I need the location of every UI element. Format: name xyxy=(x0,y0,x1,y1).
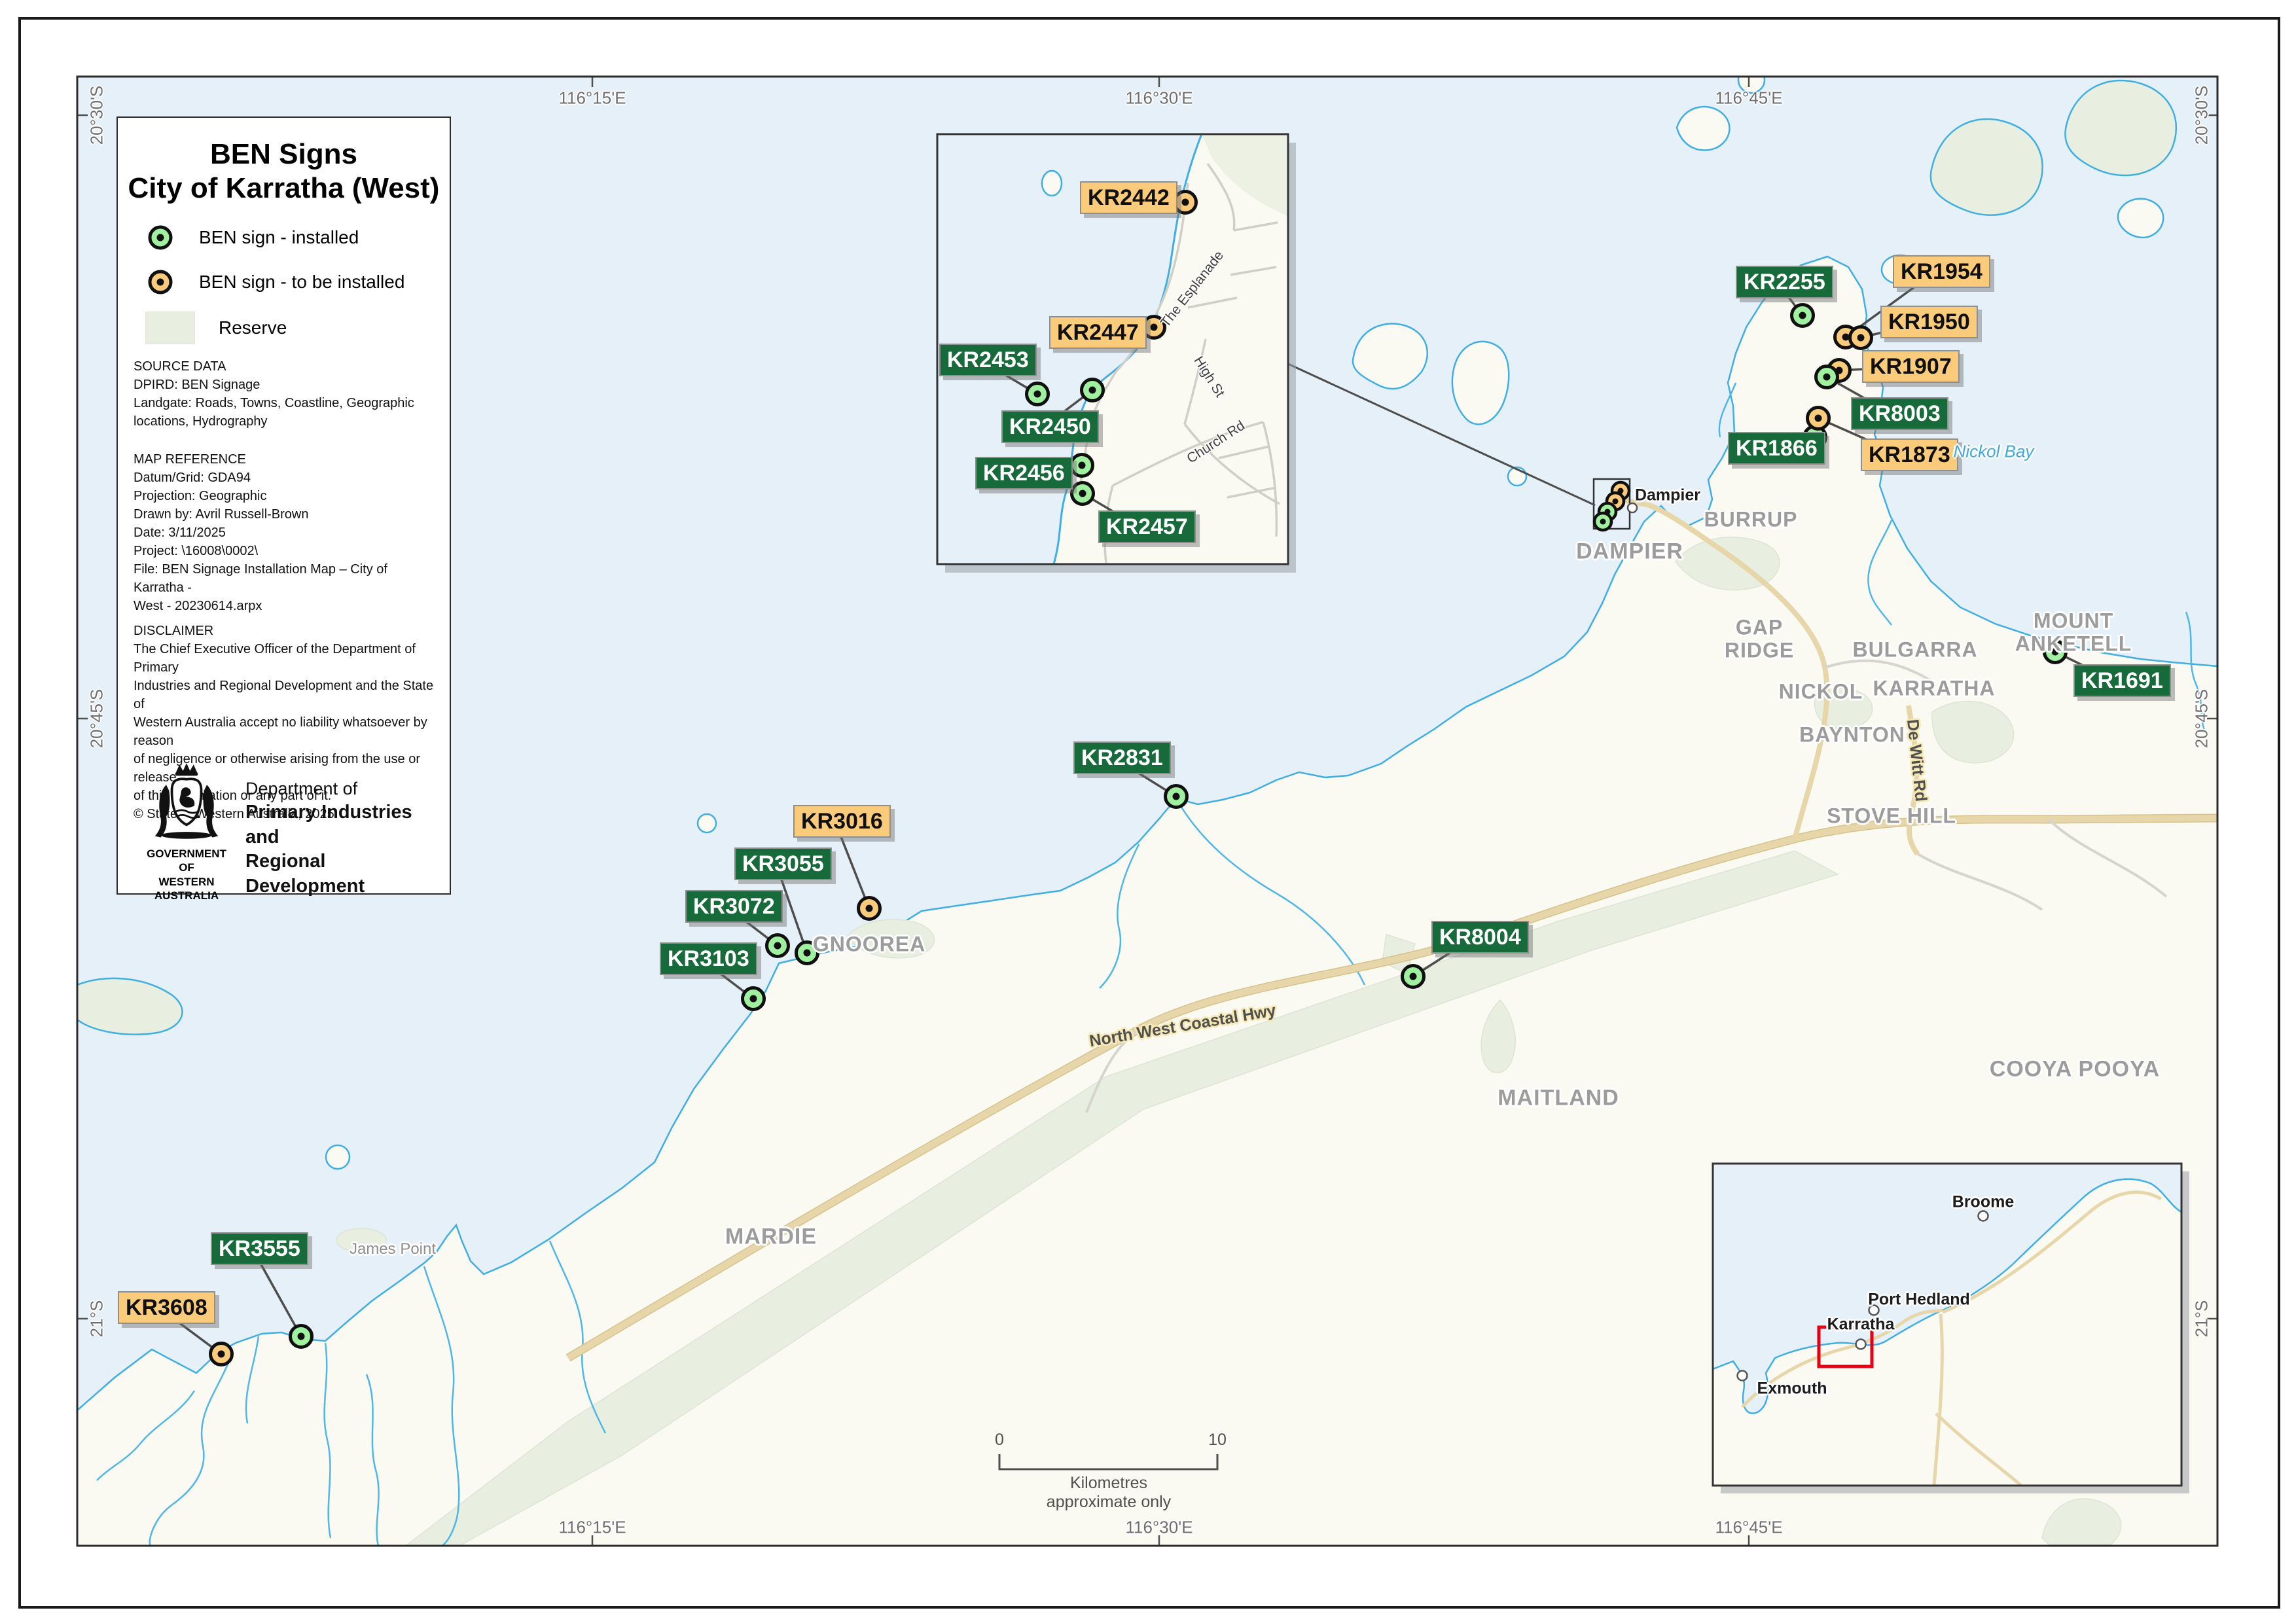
town-label-dampier: Dampier xyxy=(1635,486,1700,505)
sign-label-KR1691: KR1691 xyxy=(2073,664,2171,697)
place-label-james point: James Point xyxy=(350,1241,436,1258)
wa-government-crest: GOVERNMENT OFWESTERN AUSTRALIA xyxy=(137,762,236,902)
place-label-baynton: BAYNTON xyxy=(1799,724,1905,747)
place-label-cooya pooya: COOYA POOYA xyxy=(1990,1058,2160,1082)
place-label-maitland: MAITLAND xyxy=(1498,1086,1619,1111)
grid-label-left-20°45'S: 20°45'S xyxy=(87,689,107,749)
sign-label-KR2453: KR2453 xyxy=(939,344,1037,376)
grid-label-right-20°30'S: 20°30'S xyxy=(2192,86,2212,145)
department-line3: Regional Development xyxy=(245,851,365,897)
sign-label-KR2442: KR2442 xyxy=(1080,181,1177,214)
installed-marker-icon xyxy=(145,223,175,253)
government-caption: GOVERNMENT OFWESTERN AUSTRALIA xyxy=(137,847,236,902)
sign-label-KR2831: KR2831 xyxy=(1073,741,1171,774)
marker-center-dot xyxy=(1182,199,1189,206)
place-label-gnoorea: GNOOREA xyxy=(813,933,925,956)
grid-label-bottom-116°45'E: 116°45'E xyxy=(1715,1518,1782,1538)
scalebar-unit: Kilometres xyxy=(1070,1474,1147,1493)
sign-label-KR1907: KR1907 xyxy=(1862,350,1960,383)
sign-label-KR1954: KR1954 xyxy=(1893,255,1990,288)
crest-icon xyxy=(144,762,229,841)
legend-item-to-be-installed: BEN sign - to be installed xyxy=(145,267,404,297)
legend-label-installed: BEN sign - installed xyxy=(199,227,359,248)
map-title: BEN Signs City of Karratha (West) xyxy=(118,137,450,205)
marker-center-dot xyxy=(1410,973,1417,980)
place-label-dampier: DAMPIER xyxy=(1576,540,1683,564)
map-reference-block: MAP REFERENCE Datum/Grid: GDA94Projectio… xyxy=(134,450,438,615)
sign-label-KR2457: KR2457 xyxy=(1098,510,1196,543)
overview-inset xyxy=(1713,1164,2189,1493)
sign-label-KR3055: KR3055 xyxy=(734,847,832,880)
map-title-line1: BEN Signs xyxy=(210,138,357,170)
marker-center-dot xyxy=(1799,312,1806,319)
disclaimer-heading: DISCLAIMER xyxy=(134,624,213,638)
marker-center-dot xyxy=(1613,499,1619,505)
water-label-nickol-bay: Nickol Bay xyxy=(1954,442,2034,462)
sign-label-KR2447: KR2447 xyxy=(1049,316,1147,349)
map-title-line2: City of Karratha (West) xyxy=(128,172,440,204)
grid-label-bottom-116°15'E: 116°15'E xyxy=(558,1518,626,1538)
marker-center-dot xyxy=(298,1333,305,1340)
sign-label-KR8003: KR8003 xyxy=(1851,397,1948,430)
marker-center-dot xyxy=(1089,387,1096,394)
sign-label-KR2456: KR2456 xyxy=(975,457,1073,490)
marker-center-dot xyxy=(866,905,873,912)
map-document: KR2255KR1954KR1950KR1907KR8003KR1866KR18… xyxy=(0,0,2296,1623)
overview-town-dot-broome xyxy=(1979,1211,1988,1221)
marker-center-dot xyxy=(774,942,781,950)
scalebar-label-start: 0 xyxy=(995,1431,1004,1450)
overview-town-karratha: Karratha xyxy=(1827,1315,1895,1334)
place-label-gap-ridge: GAPRIDGE xyxy=(1725,616,1794,661)
sign-label-KR3103: KR3103 xyxy=(660,942,757,975)
grid-label-left-21°S: 21°S xyxy=(87,1300,107,1338)
sign-label-KR2255: KR2255 xyxy=(1736,266,1833,298)
sign-label-KR1950: KR1950 xyxy=(1880,306,1978,338)
sign-label-KR1866: KR1866 xyxy=(1728,432,1825,465)
place-label-mount-anketell: MOUNTANKETELL xyxy=(2015,609,2132,654)
marker-center-dot xyxy=(1857,334,1865,342)
sign-label-KR3016: KR3016 xyxy=(793,805,891,838)
legend-label-reserve: Reserve xyxy=(219,317,287,338)
grid-label-left-20°30'S: 20°30'S xyxy=(87,86,107,145)
grid-label-bottom-116°30'E: 116°30'E xyxy=(1125,1518,1193,1538)
overview-town-broome: Broome xyxy=(1952,1193,2014,1212)
marker-center-dot xyxy=(1079,462,1086,469)
place-label-burrup: BURRUP xyxy=(1704,508,1798,531)
marker-center-dot xyxy=(1823,374,1831,381)
sign-label-KR3072: KR3072 xyxy=(685,890,783,923)
source-data-block: SOURCE DATA DPIRD: BEN SignageLandgate: … xyxy=(134,357,438,431)
grid-label-top-116°30'E: 116°30'E xyxy=(1125,88,1193,109)
grid-label-top-116°15'E: 116°15'E xyxy=(558,88,626,109)
marker-center-dot xyxy=(1842,334,1850,341)
sign-label-KR2450: KR2450 xyxy=(1001,410,1099,443)
map-reference-lines: Datum/Grid: GDA94Projection: GeographicD… xyxy=(134,471,387,613)
title-legend-panel: BEN Signs City of Karratha (West) BEN si… xyxy=(117,116,451,895)
legend-item-reserve: Reserve xyxy=(145,312,287,344)
overview-town-dot-exmouth xyxy=(1738,1371,1748,1381)
place-label-nickol: NICKOL xyxy=(1779,681,1863,704)
marker-center-dot xyxy=(1600,519,1606,525)
scalebar-label-end: 10 xyxy=(1208,1431,1227,1450)
reserve-swatch xyxy=(145,312,195,344)
marker-center-dot xyxy=(1815,415,1822,422)
department-name: Department of Primary Industries and Reg… xyxy=(245,777,450,899)
department-line2: Primary Industries and xyxy=(245,802,412,847)
place-label-mardie: MARDIE xyxy=(725,1225,817,1249)
marker-center-dot xyxy=(218,1351,225,1358)
marker-center-dot xyxy=(804,950,811,957)
source-data-heading: SOURCE DATA xyxy=(134,359,226,374)
place-label-stove hill: STOVE HILL xyxy=(1827,805,1956,828)
marker-center-dot xyxy=(1079,490,1086,497)
grid-label-right-21°S: 21°S xyxy=(2192,1300,2212,1338)
grid-label-right-20°45'S: 20°45'S xyxy=(2192,689,2212,749)
grid-label-top-116°45'E: 116°45'E xyxy=(1715,88,1782,109)
legend-item-installed: BEN sign - installed xyxy=(145,223,359,253)
overview-town-exmouth: Exmouth xyxy=(1757,1380,1827,1399)
map-reference-heading: MAP REFERENCE xyxy=(134,452,246,467)
legend-label-to-be-installed: BEN sign - to be installed xyxy=(199,272,404,293)
sign-label-KR3608: KR3608 xyxy=(118,1291,215,1324)
source-data-lines: DPIRD: BEN SignageLandgate: Roads, Towns… xyxy=(134,378,414,429)
overview-town-port-hedland: Port Hedland xyxy=(1868,1291,1970,1310)
place-label-karratha: KARRATHA xyxy=(1873,677,1996,700)
sign-label-KR1873: KR1873 xyxy=(1861,438,1958,471)
sign-label-KR8004: KR8004 xyxy=(1431,921,1529,954)
sign-label-KR3555: KR3555 xyxy=(211,1232,308,1265)
to-be-installed-marker-icon xyxy=(145,267,175,297)
overview-town-dot-karratha xyxy=(1856,1340,1866,1349)
marker-center-dot xyxy=(1151,324,1158,331)
place-label-bulgarra: BULGARRA xyxy=(1852,639,1977,662)
department-line1: Department of xyxy=(245,779,357,798)
scalebar-note: approximate only xyxy=(1047,1493,1171,1512)
marker-center-dot xyxy=(1173,793,1180,800)
marker-center-dot xyxy=(1034,391,1041,398)
marker-center-dot xyxy=(750,995,757,1003)
